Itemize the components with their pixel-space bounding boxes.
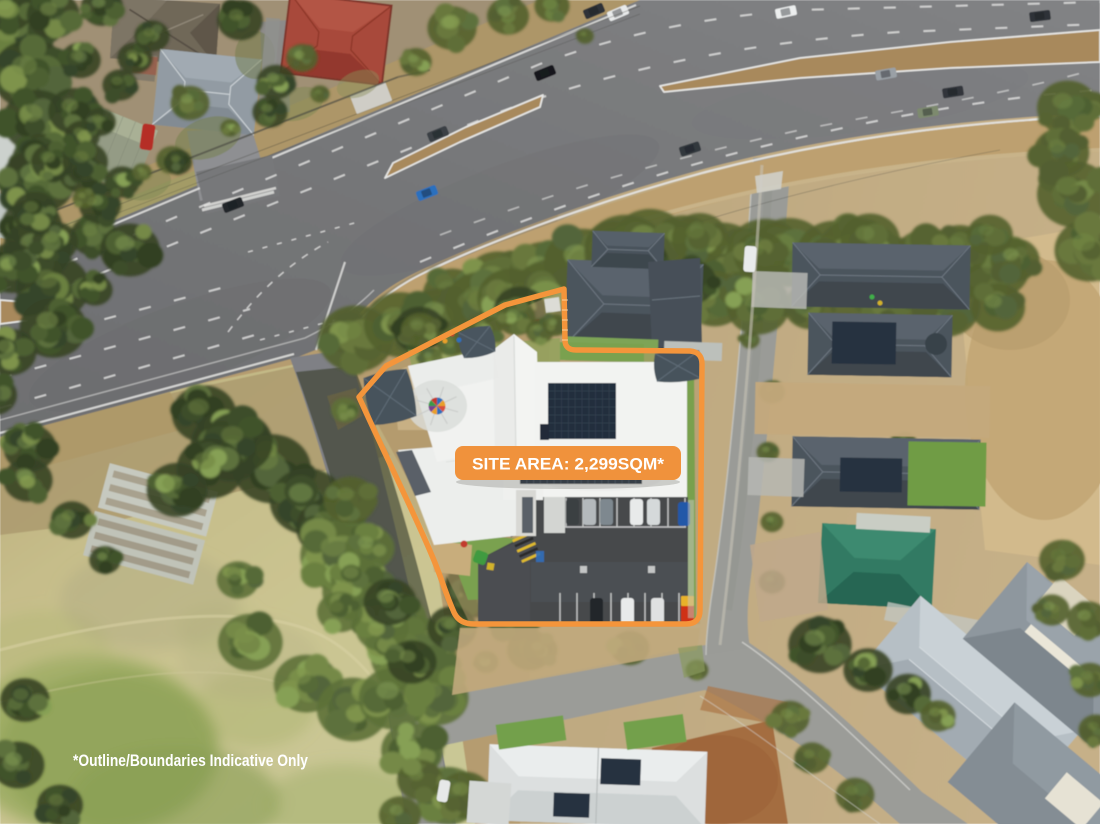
svg-text:SITE AREA: 2,299SQM*: SITE AREA: 2,299SQM* — [472, 455, 664, 474]
svg-text:*Outline/Boundaries Indicative: *Outline/Boundaries Indicative Only — [73, 751, 308, 770]
